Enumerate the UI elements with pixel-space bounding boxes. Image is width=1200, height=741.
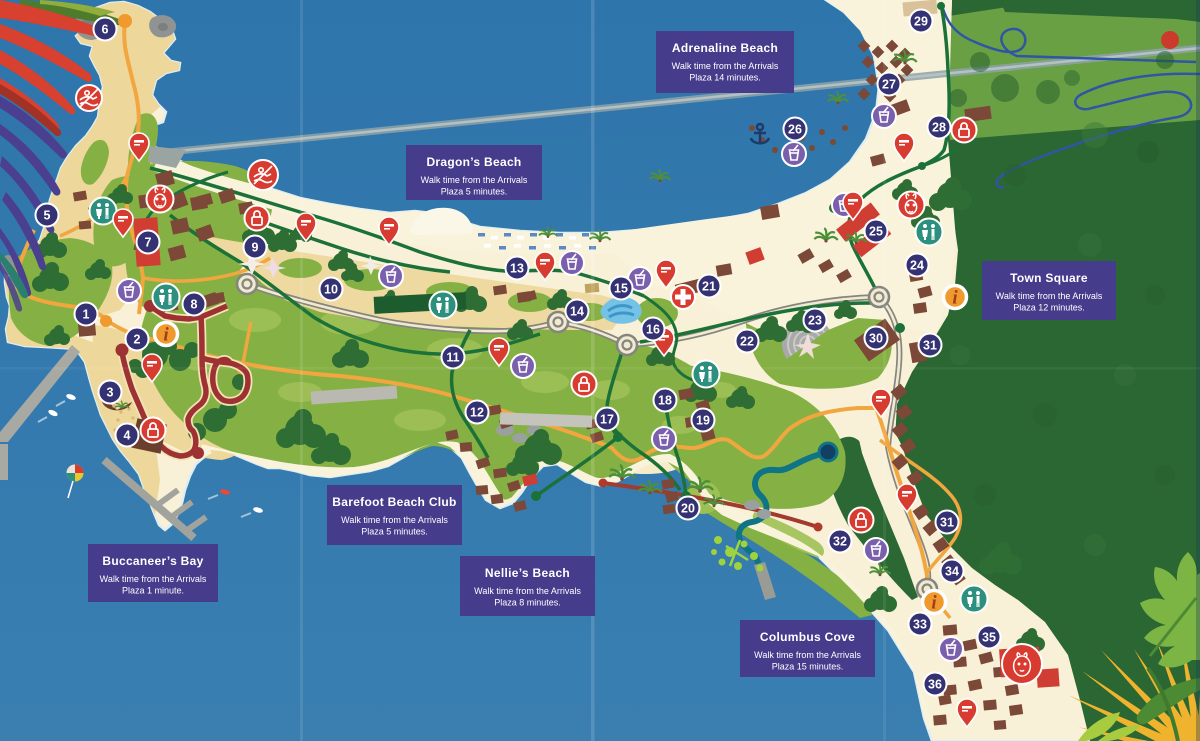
svg-text:31: 31: [940, 516, 954, 530]
svg-text:Barefoot Beach Club: Barefoot Beach Club: [332, 495, 456, 509]
svg-text:17: 17: [600, 413, 614, 427]
svg-text:Plaza 8 minutes.: Plaza 8 minutes.: [494, 598, 561, 608]
svg-text:32: 32: [833, 535, 847, 549]
svg-text:i: i: [163, 325, 169, 346]
svg-text:24: 24: [910, 259, 924, 273]
svg-text:21: 21: [702, 280, 716, 294]
svg-text:16: 16: [646, 323, 660, 337]
svg-text:18: 18: [658, 394, 672, 408]
svg-text:Walk time from the Arrivals: Walk time from the Arrivals: [996, 291, 1103, 301]
svg-text:7: 7: [145, 236, 152, 250]
svg-text:11: 11: [446, 351, 459, 365]
svg-text:28: 28: [932, 121, 946, 135]
svg-text:Plaza 12 minutes.: Plaza 12 minutes.: [1013, 303, 1085, 313]
svg-text:Walk time from the Arrivals: Walk time from the Arrivals: [672, 61, 779, 71]
svg-text:4: 4: [124, 429, 131, 443]
svg-text:13: 13: [510, 262, 524, 276]
svg-text:Walk time from the Arrivals: Walk time from the Arrivals: [341, 515, 448, 525]
svg-text:Buccaneer’s Bay: Buccaneer’s Bay: [102, 554, 203, 568]
svg-text:25: 25: [869, 225, 883, 239]
svg-text:3: 3: [107, 386, 114, 400]
svg-text:Walk time from the Arrivals: Walk time from the Arrivals: [754, 650, 861, 660]
svg-text:5: 5: [44, 209, 51, 223]
svg-text:6: 6: [102, 23, 109, 37]
svg-text:Adrenaline Beach: Adrenaline Beach: [672, 41, 778, 55]
svg-text:20: 20: [681, 502, 695, 516]
svg-text:34: 34: [945, 565, 959, 579]
svg-text:Town Square: Town Square: [1010, 271, 1088, 285]
svg-text:35: 35: [982, 631, 996, 645]
svg-text:Plaza 15 minutes.: Plaza 15 minutes.: [772, 662, 844, 672]
svg-text:Columbus Cove: Columbus Cove: [760, 630, 855, 644]
svg-text:i: i: [952, 288, 958, 309]
svg-text:12: 12: [470, 406, 484, 420]
svg-text:14: 14: [570, 305, 584, 319]
svg-text:23: 23: [808, 314, 822, 328]
svg-text:15: 15: [614, 282, 628, 296]
svg-text:Plaza 5 minutes.: Plaza 5 minutes.: [441, 187, 508, 197]
svg-text:8: 8: [191, 298, 198, 312]
svg-text:i: i: [931, 593, 937, 614]
svg-text:10: 10: [324, 283, 338, 297]
svg-text:27: 27: [882, 78, 896, 92]
svg-text:31: 31: [923, 339, 937, 353]
svg-text:Walk time from the Arrivals: Walk time from the Arrivals: [421, 175, 528, 185]
svg-text:Plaza 1 minute.: Plaza 1 minute.: [122, 586, 184, 596]
svg-text:26: 26: [788, 123, 802, 137]
svg-text:Plaza 14 minutes.: Plaza 14 minutes.: [689, 73, 761, 83]
svg-text:2: 2: [134, 333, 141, 347]
svg-text:Plaza 5 minutes.: Plaza 5 minutes.: [361, 527, 428, 537]
svg-text:29: 29: [914, 15, 928, 29]
svg-text:36: 36: [928, 678, 942, 692]
svg-text:Nellie’s Beach: Nellie’s Beach: [485, 566, 570, 580]
svg-text:22: 22: [740, 335, 754, 349]
svg-text:1: 1: [83, 308, 90, 322]
svg-text:33: 33: [913, 618, 927, 632]
svg-text:19: 19: [696, 414, 710, 428]
svg-text:Dragon’s Beach: Dragon’s Beach: [426, 155, 521, 169]
svg-text:30: 30: [869, 332, 883, 346]
svg-text:9: 9: [252, 241, 259, 255]
svg-text:Walk time from the Arrivals: Walk time from the Arrivals: [100, 574, 207, 584]
svg-text:Walk time from the Arrivals: Walk time from the Arrivals: [474, 586, 581, 596]
